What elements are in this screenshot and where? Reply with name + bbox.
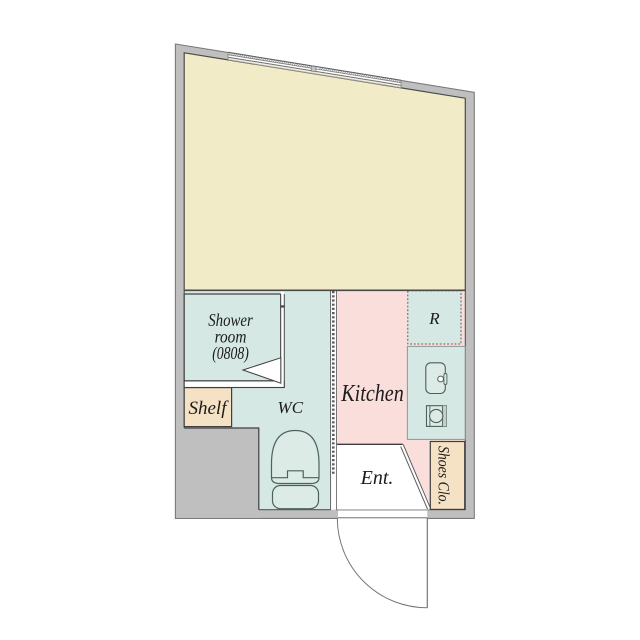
svg-text:Ent.: Ent. [360,467,394,489]
svg-text:(0808): (0808) [212,343,249,363]
svg-text:Shelf: Shelf [189,398,230,419]
svg-text:R: R [428,309,440,328]
svg-text:WC: WC [278,398,304,417]
svg-text:Shoes Clo.: Shoes Clo. [435,446,452,505]
svg-text:Kitchen: Kitchen [340,381,403,407]
